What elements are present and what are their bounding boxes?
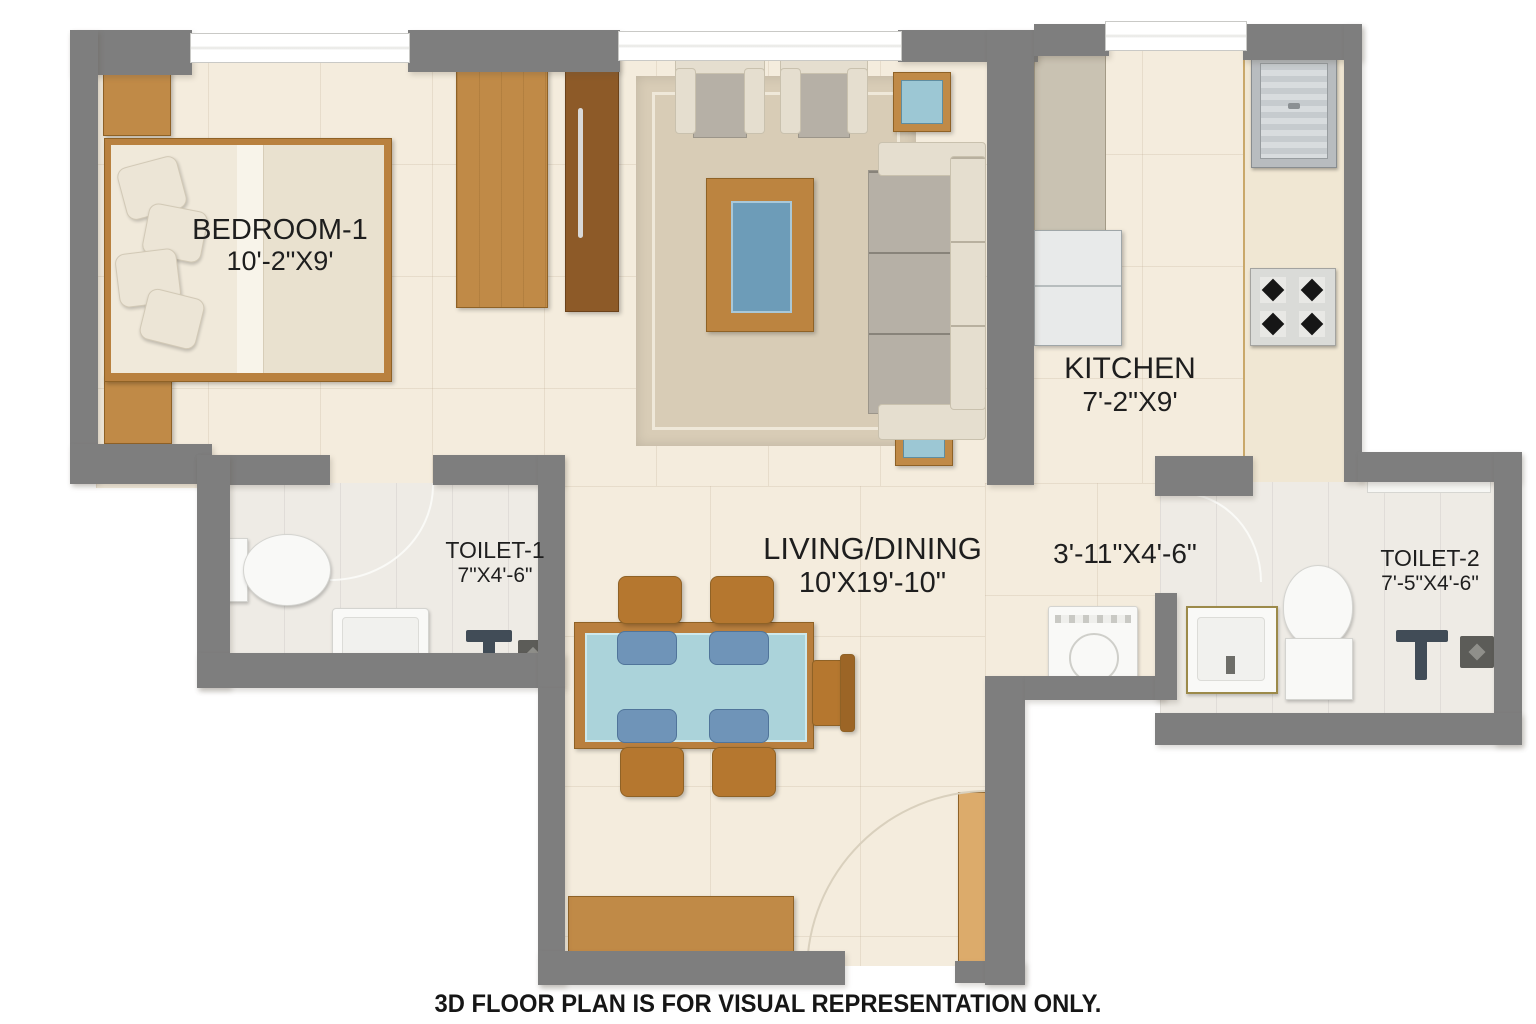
cabinet-handle bbox=[578, 108, 583, 238]
armchair-arm bbox=[847, 68, 868, 134]
wall bbox=[538, 688, 565, 985]
window-bedroom bbox=[190, 33, 410, 63]
wall bbox=[1344, 24, 1362, 482]
sofa-seats bbox=[868, 170, 954, 414]
living-dining-dimensions: 10'X19'-10" bbox=[740, 567, 1005, 599]
footer-disclaimer: 3D FLOOR PLAN IS FOR VISUAL REPRESENTATI… bbox=[0, 990, 1536, 1019]
toilet2-shower-stem bbox=[1415, 640, 1427, 680]
kitchen-name: KITCHEN bbox=[1035, 352, 1225, 386]
toilet1-name: TOILET-1 bbox=[415, 538, 575, 564]
bedroom1-dimensions: 10'-2"X9' bbox=[160, 246, 400, 276]
wall bbox=[408, 30, 620, 72]
armchair-arm bbox=[675, 68, 696, 134]
dining-seat-cushion bbox=[617, 709, 677, 743]
label-bedroom1: BEDROOM-1 10'-2"X9' bbox=[160, 214, 400, 277]
dining-seat-cushion bbox=[709, 631, 769, 665]
basin-tap bbox=[1226, 656, 1235, 674]
side-table-top bbox=[901, 80, 943, 124]
wall bbox=[70, 444, 212, 484]
wall bbox=[985, 676, 1025, 985]
wall bbox=[1155, 593, 1177, 700]
armchair-seat bbox=[798, 70, 850, 138]
armchair-arm bbox=[744, 68, 765, 134]
label-toilet1: TOILET-1 7"X4'-6" bbox=[415, 538, 575, 587]
toilet2-cistern bbox=[1285, 638, 1353, 700]
living-dining-name: LIVING/DINING bbox=[740, 532, 1005, 567]
wall bbox=[1494, 452, 1522, 745]
burner bbox=[1260, 311, 1286, 337]
burner bbox=[1260, 277, 1286, 303]
wardrobe bbox=[456, 46, 548, 308]
window-living bbox=[618, 31, 902, 61]
nightstand-bottom bbox=[104, 374, 172, 444]
bedroom1-name: BEDROOM-1 bbox=[160, 214, 400, 246]
nightstand-top bbox=[103, 70, 171, 136]
washing-machine-controls bbox=[1055, 615, 1131, 623]
window-kitchen bbox=[1105, 21, 1247, 51]
label-living-dining: LIVING/DINING 10'X19'-10" bbox=[740, 532, 1005, 599]
coffee-table-glass bbox=[731, 201, 792, 313]
passage-dimensions: 3'-11"X4'-6" bbox=[1030, 538, 1220, 569]
fridge bbox=[1034, 230, 1122, 346]
dining-chair bbox=[712, 747, 776, 797]
sofa bbox=[862, 142, 988, 440]
tall-cabinet bbox=[565, 55, 619, 312]
armchair-arm bbox=[780, 68, 801, 134]
wall bbox=[1025, 676, 1165, 700]
kitchen-sink bbox=[1251, 54, 1337, 168]
side-table bbox=[893, 72, 951, 132]
dining-chair-head-back bbox=[840, 654, 855, 732]
toilet2-bowl bbox=[1283, 565, 1353, 647]
label-kitchen: KITCHEN 7'-2"X9' bbox=[1035, 352, 1225, 417]
console-sideboard bbox=[568, 896, 794, 958]
stove-hob bbox=[1250, 268, 1336, 346]
toilet2-name: TOILET-2 bbox=[1355, 546, 1505, 572]
burner bbox=[1299, 311, 1325, 337]
sink-basin bbox=[1260, 63, 1328, 159]
kitchen-dimensions: 7'-2"X9' bbox=[1035, 386, 1225, 417]
dining-table bbox=[574, 622, 814, 749]
burner bbox=[1299, 277, 1325, 303]
dining-seat-cushion bbox=[709, 709, 769, 743]
wall bbox=[1034, 24, 1109, 56]
armchair-seat bbox=[693, 70, 747, 138]
dining-chair bbox=[620, 747, 684, 797]
dining-seat-cushion bbox=[617, 631, 677, 665]
dining-chair bbox=[618, 576, 682, 624]
kitchen-counter-left bbox=[1034, 46, 1106, 234]
wall bbox=[70, 30, 98, 482]
fridge-door-split bbox=[1035, 285, 1121, 287]
toilet2-washbasin bbox=[1186, 606, 1278, 694]
sink-faucet bbox=[1288, 103, 1300, 109]
wall bbox=[987, 30, 1034, 485]
wall bbox=[197, 653, 565, 688]
label-toilet2: TOILET-2 7'-5"X4'-6" bbox=[1355, 546, 1505, 595]
sofa-back-cushions bbox=[950, 156, 986, 410]
wall bbox=[1155, 456, 1253, 496]
wall bbox=[1155, 713, 1522, 745]
coffee-table bbox=[706, 178, 814, 332]
wall bbox=[538, 951, 845, 985]
toilet1-dimensions: 7"X4'-6" bbox=[415, 564, 575, 588]
toilet2-floor-drain bbox=[1460, 636, 1494, 668]
label-passage: 3'-11"X4'-6" bbox=[1030, 538, 1220, 569]
disclaimer-text: 3D FLOOR PLAN IS FOR VISUAL REPRESENTATI… bbox=[435, 990, 1102, 1019]
floor-plan: BEDROOM-1 10'-2"X9' LIVING/DINING 10'X19… bbox=[0, 0, 1536, 1024]
toilet1-bowl bbox=[243, 534, 331, 606]
toilet2-dimensions: 7'-5"X4'-6" bbox=[1355, 572, 1505, 596]
